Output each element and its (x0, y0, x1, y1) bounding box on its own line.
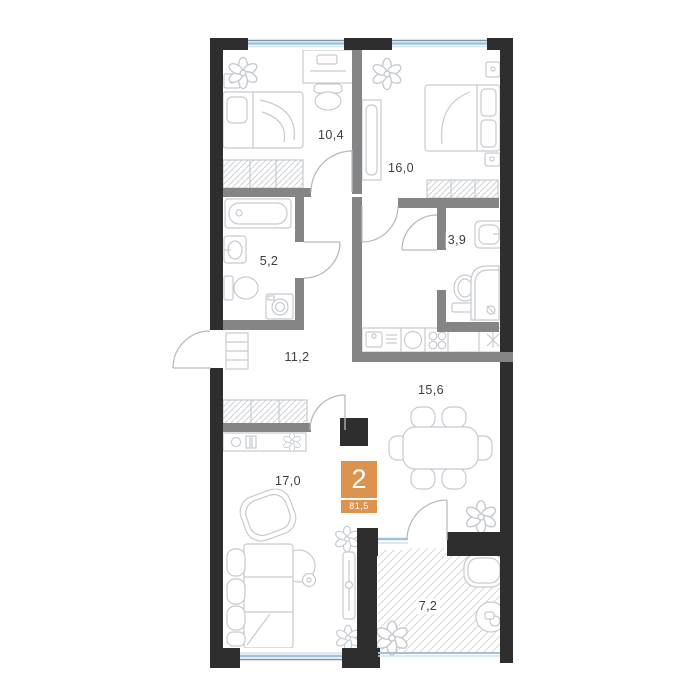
bathroom-door (304, 242, 340, 278)
balcony-chair-icon (464, 554, 504, 587)
hall-closet-icon (223, 400, 307, 424)
sideboard-icon (223, 433, 306, 452)
desk-icon (303, 50, 353, 110)
floor-plan-page: 10,4 16,0 3,9 5,2 11,2 15,6 17,0 7,2 2 8… (0, 0, 700, 700)
bathroom-small-door (402, 215, 437, 250)
bathtub-icon (225, 199, 291, 228)
room-label-balcony: 7,2 (417, 599, 440, 614)
room-label-hallway: 11,2 (282, 350, 311, 365)
bedroom2-door (362, 206, 398, 242)
bedroom1-door (311, 150, 352, 192)
oven-icon (405, 332, 422, 349)
tall-wardrobe-icon (362, 100, 381, 180)
armchair-icon (236, 484, 301, 545)
window-top-left (248, 38, 344, 50)
plant-icon (371, 58, 402, 89)
entrance-door (173, 331, 211, 368)
floor-plan-drawing (0, 0, 700, 700)
wardrobe-icon (427, 180, 498, 198)
sofa-icon (227, 544, 293, 648)
double-bed-icon (425, 85, 500, 151)
dining-table-icon (403, 427, 478, 469)
living-room-door (310, 395, 345, 430)
window-top-right (392, 38, 487, 50)
wardrobe-icon (223, 160, 303, 188)
sink-icon (224, 236, 246, 263)
room-count-badge: 2 (341, 461, 377, 498)
room-label-bathroom: 5,2 (258, 254, 281, 269)
rug-icon (226, 333, 248, 369)
room-label-bedroom-2: 16,0 (386, 161, 416, 176)
bed-icon (223, 92, 303, 148)
shower-icon (471, 266, 499, 320)
total-area-badge: 81,5 (341, 500, 377, 513)
room-label-kitchen-living: 15,6 (416, 383, 446, 398)
tv-stand-icon (343, 552, 355, 619)
apartment-badge: 2 81,5 (341, 461, 377, 513)
room-label-bathroom-small: 3,9 (446, 233, 469, 248)
toilet-icon (224, 276, 258, 300)
room-label-bedroom-1: 10,4 (316, 128, 346, 143)
washing-machine-icon (266, 294, 293, 319)
balcony-door (407, 500, 447, 540)
sink-icon (475, 221, 503, 248)
plant-icon (334, 526, 360, 552)
room-label-living-room: 17,0 (273, 474, 303, 489)
balcony-glazing (378, 653, 500, 656)
balcony-window (378, 534, 408, 550)
plant-icon (465, 501, 498, 533)
dining-set-icon (389, 407, 492, 489)
window-bottom (240, 648, 342, 668)
